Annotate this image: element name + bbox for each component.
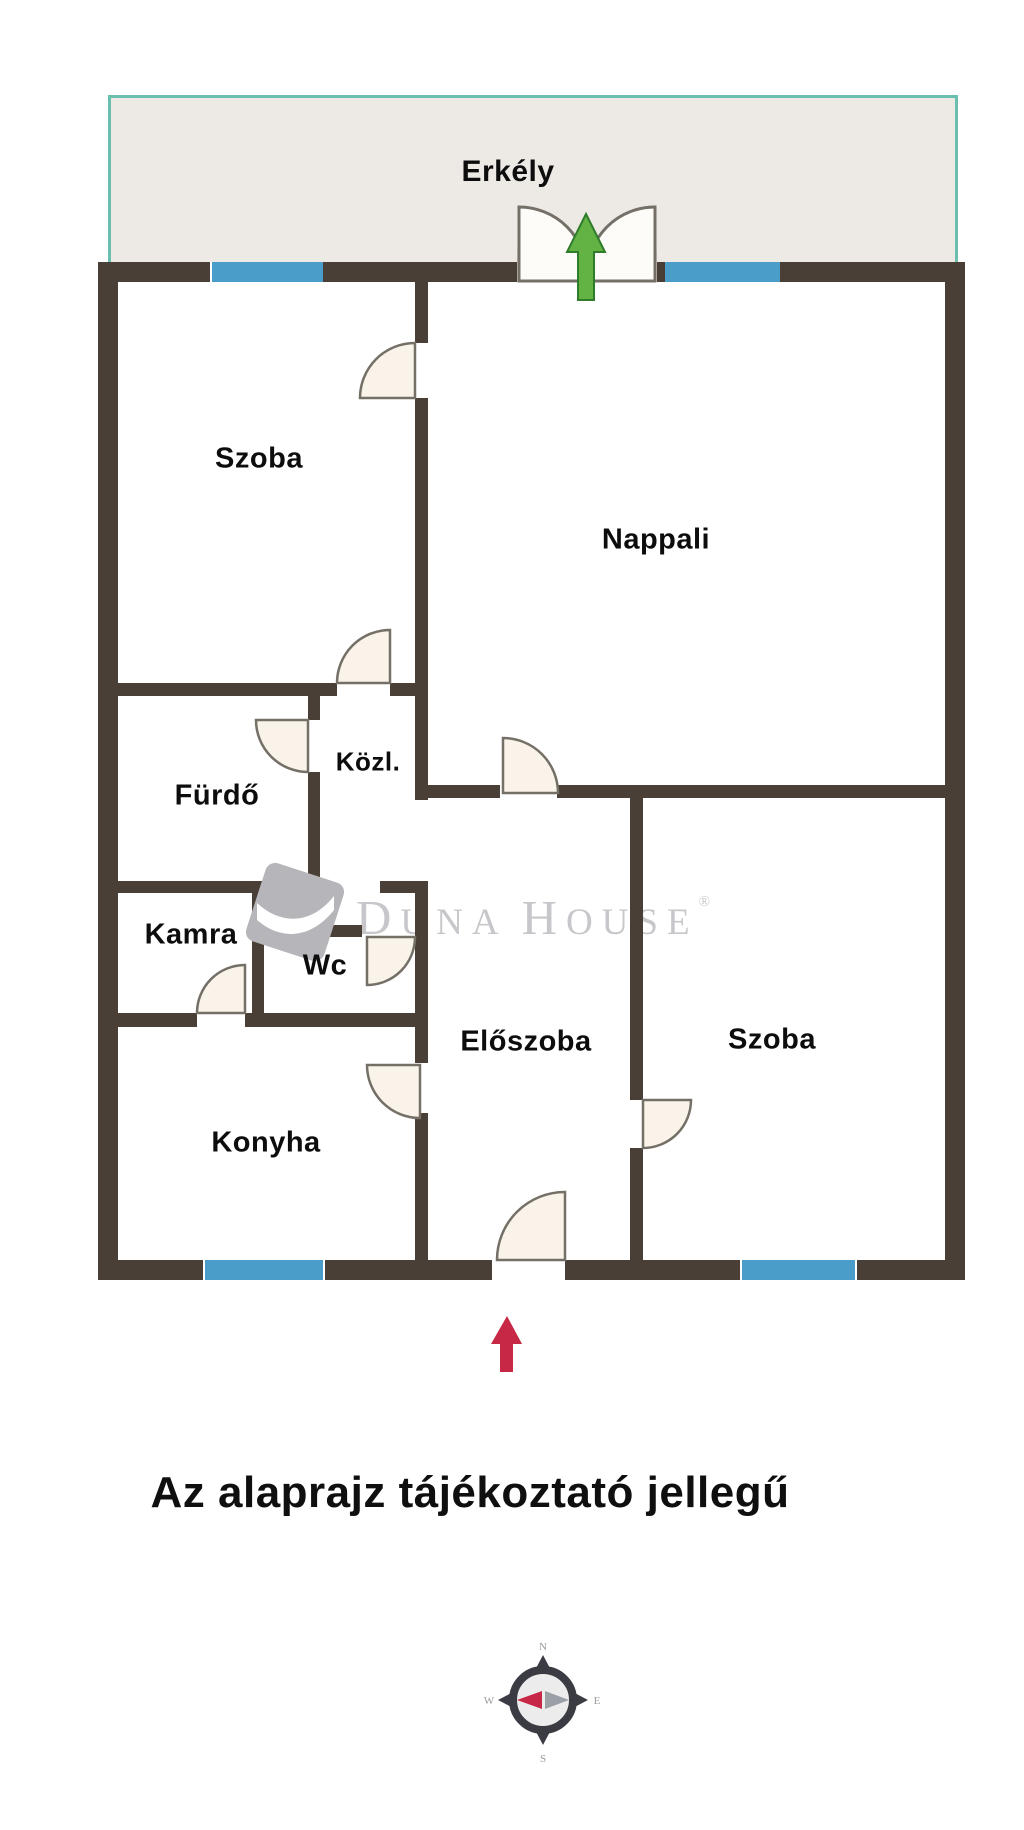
wall — [98, 1260, 203, 1280]
wall — [428, 785, 500, 798]
wall — [323, 262, 517, 282]
door-konyha — [367, 1065, 420, 1118]
wall — [780, 262, 965, 282]
wall — [557, 785, 965, 798]
room-label-wc: Wc — [303, 950, 348, 983]
compass-label-w: W — [484, 1695, 495, 1707]
balcony-rail-right — [955, 95, 958, 262]
window — [205, 1260, 323, 1280]
wall — [325, 1260, 492, 1280]
balcony-rail-left — [108, 95, 111, 262]
room-label-kozl: Közl. — [336, 747, 401, 778]
room-label-konyha: Konyha — [211, 1127, 320, 1160]
window — [665, 262, 780, 282]
wall — [118, 1013, 197, 1027]
wall — [245, 1013, 415, 1027]
disclaimer-caption: Az alaprajz tájékoztató jellegű — [0, 1468, 940, 1518]
room-label-erkely: Erkély — [461, 155, 554, 189]
room-label-szoba1: Szoba — [215, 443, 303, 476]
compass-label-n: N — [539, 1641, 547, 1653]
floor-plan-drawing: N S W E — [0, 0, 1024, 1830]
wall — [415, 1113, 428, 1260]
door-wc — [367, 937, 415, 985]
door-nappali — [503, 738, 558, 793]
wall — [565, 1260, 740, 1280]
room-label-eloszoba: Előszoba — [460, 1026, 591, 1059]
wall — [308, 696, 320, 720]
wall — [415, 398, 428, 800]
wall — [857, 1260, 965, 1280]
wall — [630, 798, 643, 1100]
compass-label-e: E — [594, 1695, 601, 1707]
doors — [197, 343, 691, 1260]
door-szoba2 — [643, 1100, 691, 1148]
compass-rose: N S W E — [484, 1641, 601, 1765]
room-label-szoba2: Szoba — [728, 1024, 816, 1057]
balcony-rail-top — [108, 95, 958, 98]
floor-plan-page: DUNAHOUSE® — [0, 0, 1024, 1830]
door-kamra — [197, 965, 245, 1013]
door-furdo — [256, 720, 308, 772]
door-entrance — [497, 1192, 565, 1260]
room-label-furdo: Fürdő — [175, 780, 260, 813]
wall — [630, 1148, 643, 1260]
wall — [945, 262, 965, 1280]
room-label-kamra: Kamra — [145, 919, 238, 952]
room-label-nappali: Nappali — [602, 524, 710, 557]
wall — [380, 881, 428, 893]
door-szoba1 — [360, 343, 415, 398]
door-szoba1-kozl — [337, 630, 390, 683]
window — [742, 1260, 855, 1280]
wall — [415, 883, 428, 1063]
wall — [118, 683, 337, 696]
wall — [390, 683, 428, 696]
wall — [415, 282, 428, 343]
wall — [98, 262, 118, 1280]
window — [212, 262, 323, 282]
wall — [98, 262, 210, 282]
compass-label-s: S — [540, 1753, 546, 1765]
north-arrow — [491, 1316, 522, 1372]
